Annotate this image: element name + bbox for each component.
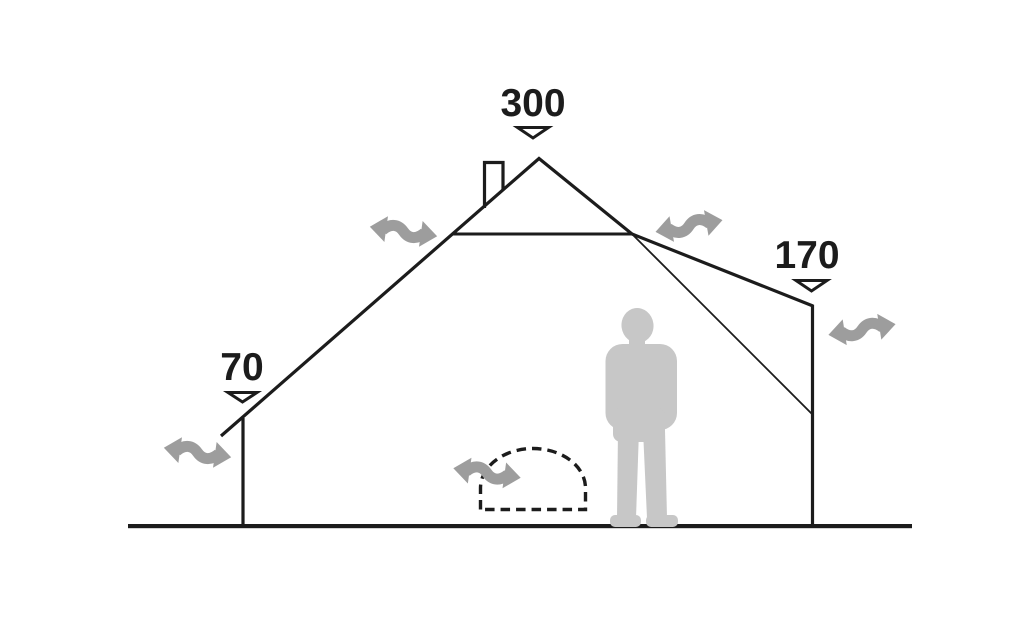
svg-text:170: 170 xyxy=(774,234,839,277)
svg-text:70: 70 xyxy=(220,346,263,389)
svg-text:300: 300 xyxy=(500,82,565,125)
